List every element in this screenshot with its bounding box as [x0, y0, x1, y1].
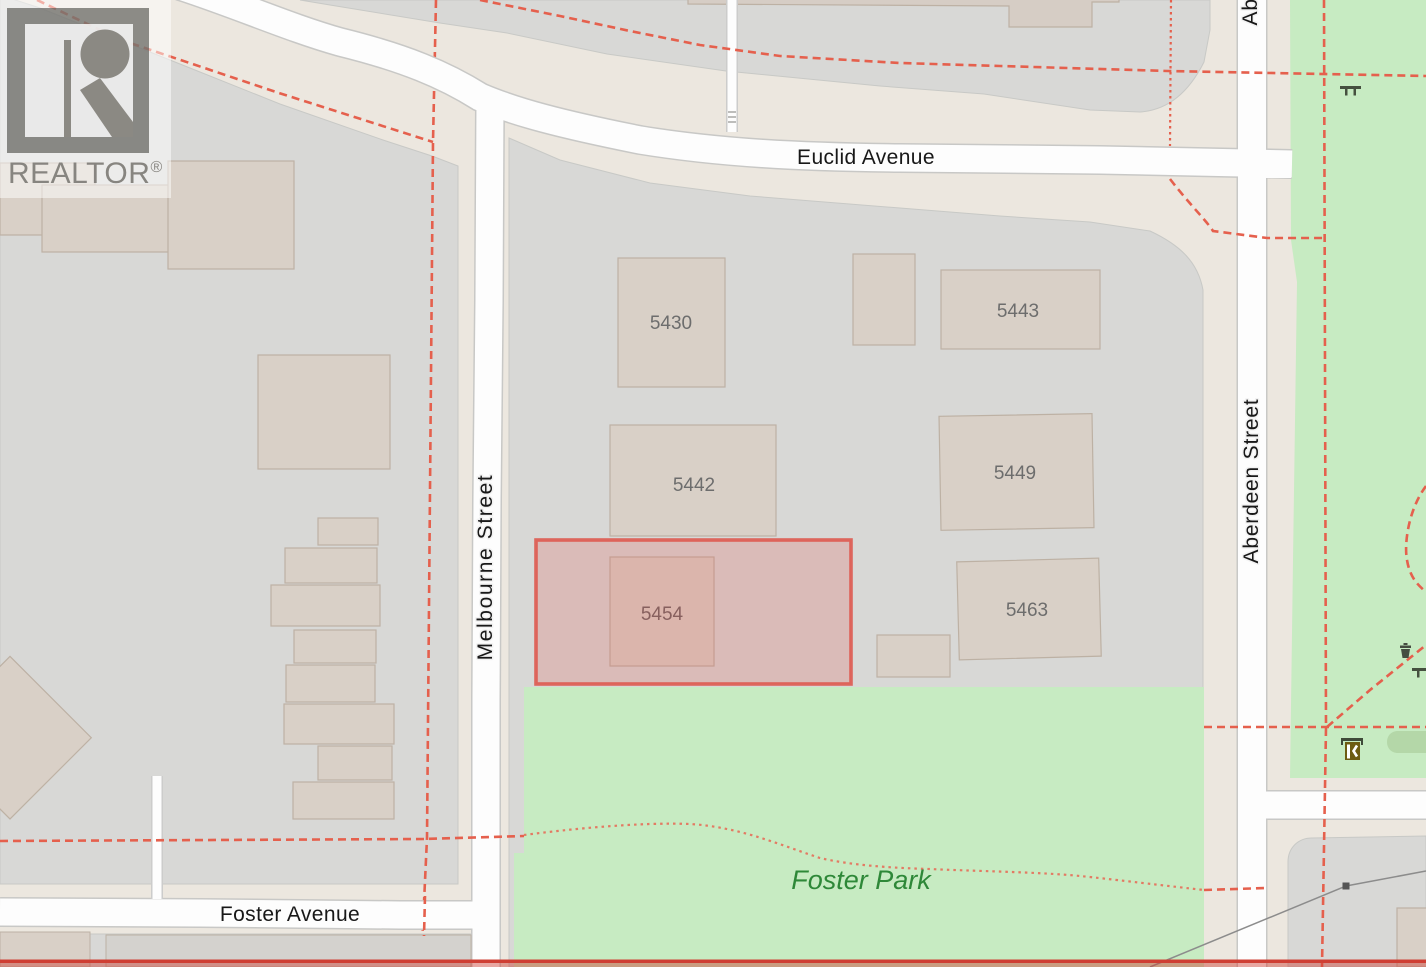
svg-text:Foster Park: Foster Park: [791, 865, 932, 895]
svg-text:Melbourne Street: Melbourne Street: [474, 474, 497, 661]
svg-text:5463: 5463: [1006, 600, 1048, 621]
svg-text:5430: 5430: [650, 313, 692, 334]
svg-text:5449: 5449: [994, 463, 1036, 484]
svg-text:5442: 5442: [673, 475, 715, 496]
svg-text:Aberdeen Street: Aberdeen Street: [1240, 399, 1263, 564]
svg-text:5454: 5454: [641, 604, 684, 625]
svg-text:Euclid Avenue: Euclid Avenue: [797, 146, 935, 169]
svg-text:REALTOR®: REALTOR®: [8, 157, 162, 190]
svg-text:Aberdeen Street: Aberdeen Street: [1239, 0, 1262, 25]
svg-text:5443: 5443: [997, 301, 1039, 322]
svg-text:Foster Avenue: Foster Avenue: [220, 903, 360, 926]
